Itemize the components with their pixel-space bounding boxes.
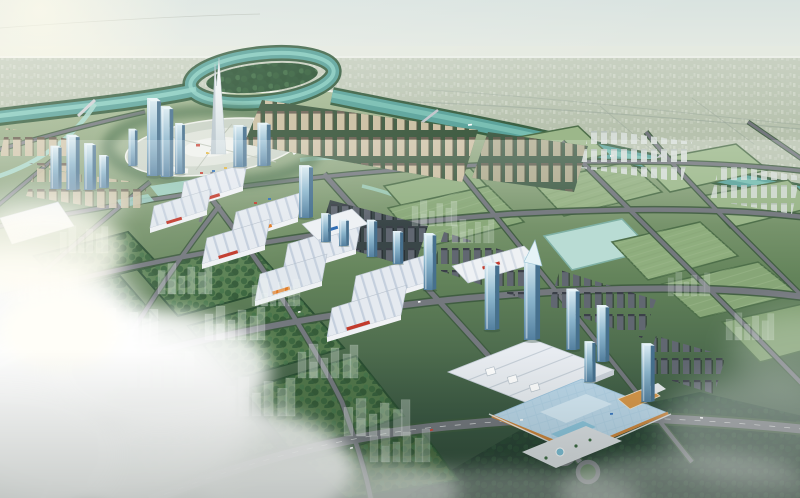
aerial-rendering: Aerial CGI rendering of a planned city d… <box>0 0 800 498</box>
vignette <box>0 0 800 498</box>
masterplan-canvas <box>0 0 800 498</box>
